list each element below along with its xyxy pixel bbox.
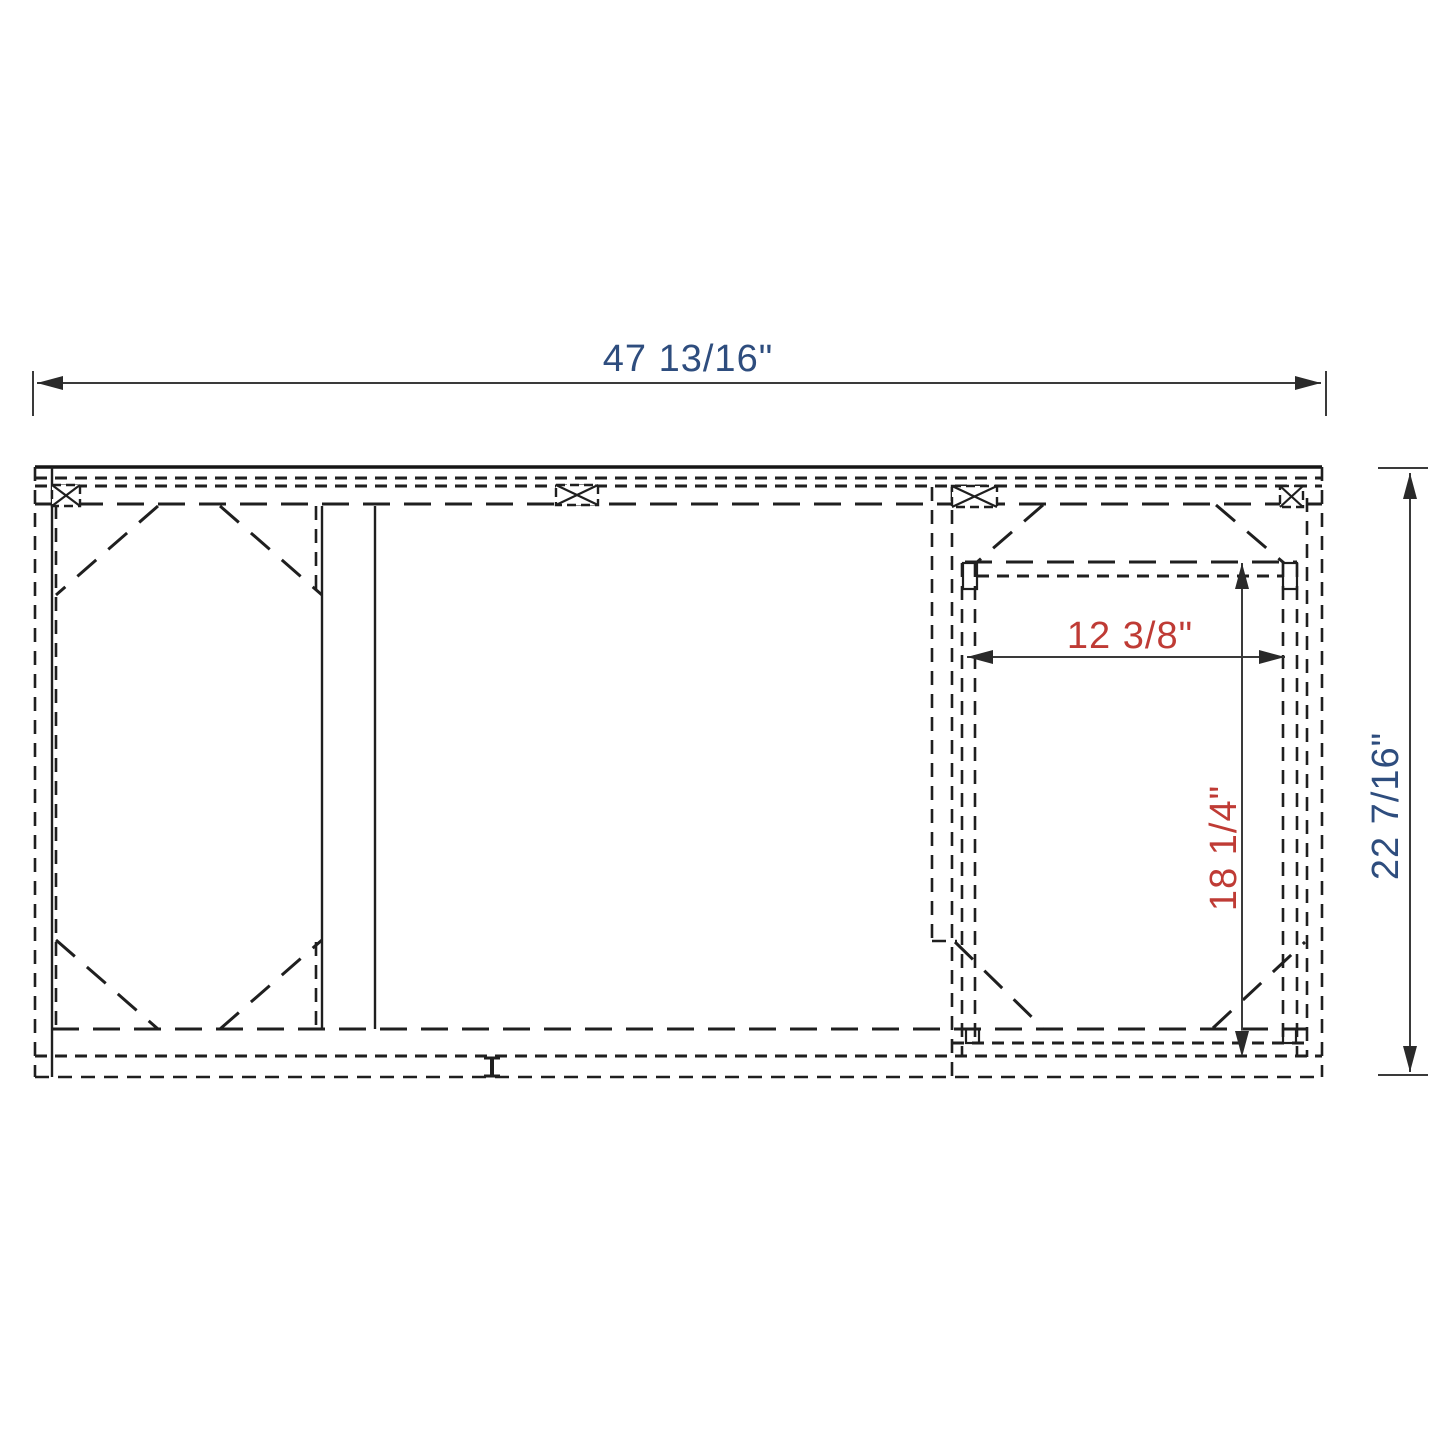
right-opening bbox=[952, 498, 1307, 1057]
corner-block-right-mid bbox=[952, 486, 997, 507]
arrow-left-icon bbox=[967, 650, 993, 664]
arrow-right-icon bbox=[1295, 376, 1321, 390]
overall-depth-label: 22 7/16" bbox=[1365, 732, 1407, 880]
arrow-left-icon bbox=[37, 376, 63, 390]
arrow-right-icon bbox=[1259, 650, 1285, 664]
section-cut-mark bbox=[484, 1058, 500, 1076]
opening-height-label: 18 1/4" bbox=[1203, 785, 1245, 911]
technical-drawing-page: 47 13/16" 22 7/16" 12 3/8" 18 1/4" bbox=[0, 0, 1445, 1445]
opening-bracket-top-right bbox=[1283, 563, 1297, 589]
dimension-opening-width: 12 3/8" bbox=[967, 615, 1285, 664]
arrow-down-icon bbox=[1403, 1046, 1417, 1072]
arrow-up-icon bbox=[1403, 473, 1417, 499]
cabinet-body bbox=[35, 467, 1322, 1077]
corner-block-left bbox=[52, 485, 80, 506]
dimension-opening-height: 18 1/4" bbox=[1203, 563, 1249, 1057]
corner-block-middle bbox=[556, 485, 598, 505]
opening-bracket-bottom-left bbox=[966, 1029, 979, 1043]
opening-width-label: 12 3/8" bbox=[1067, 615, 1193, 657]
overall-width-label: 47 13/16" bbox=[603, 338, 773, 380]
opening-bracket-bottom-right bbox=[1283, 1029, 1296, 1043]
cabinet-drawing-canvas: 47 13/16" 22 7/16" 12 3/8" 18 1/4" bbox=[0, 0, 1445, 1445]
corner-block-far-right bbox=[1280, 486, 1303, 507]
left-compartment-braces bbox=[56, 506, 322, 1029]
dimension-overall-depth: 22 7/16" bbox=[1365, 468, 1428, 1075]
dimension-overall-width: 47 13/16" bbox=[33, 338, 1326, 416]
